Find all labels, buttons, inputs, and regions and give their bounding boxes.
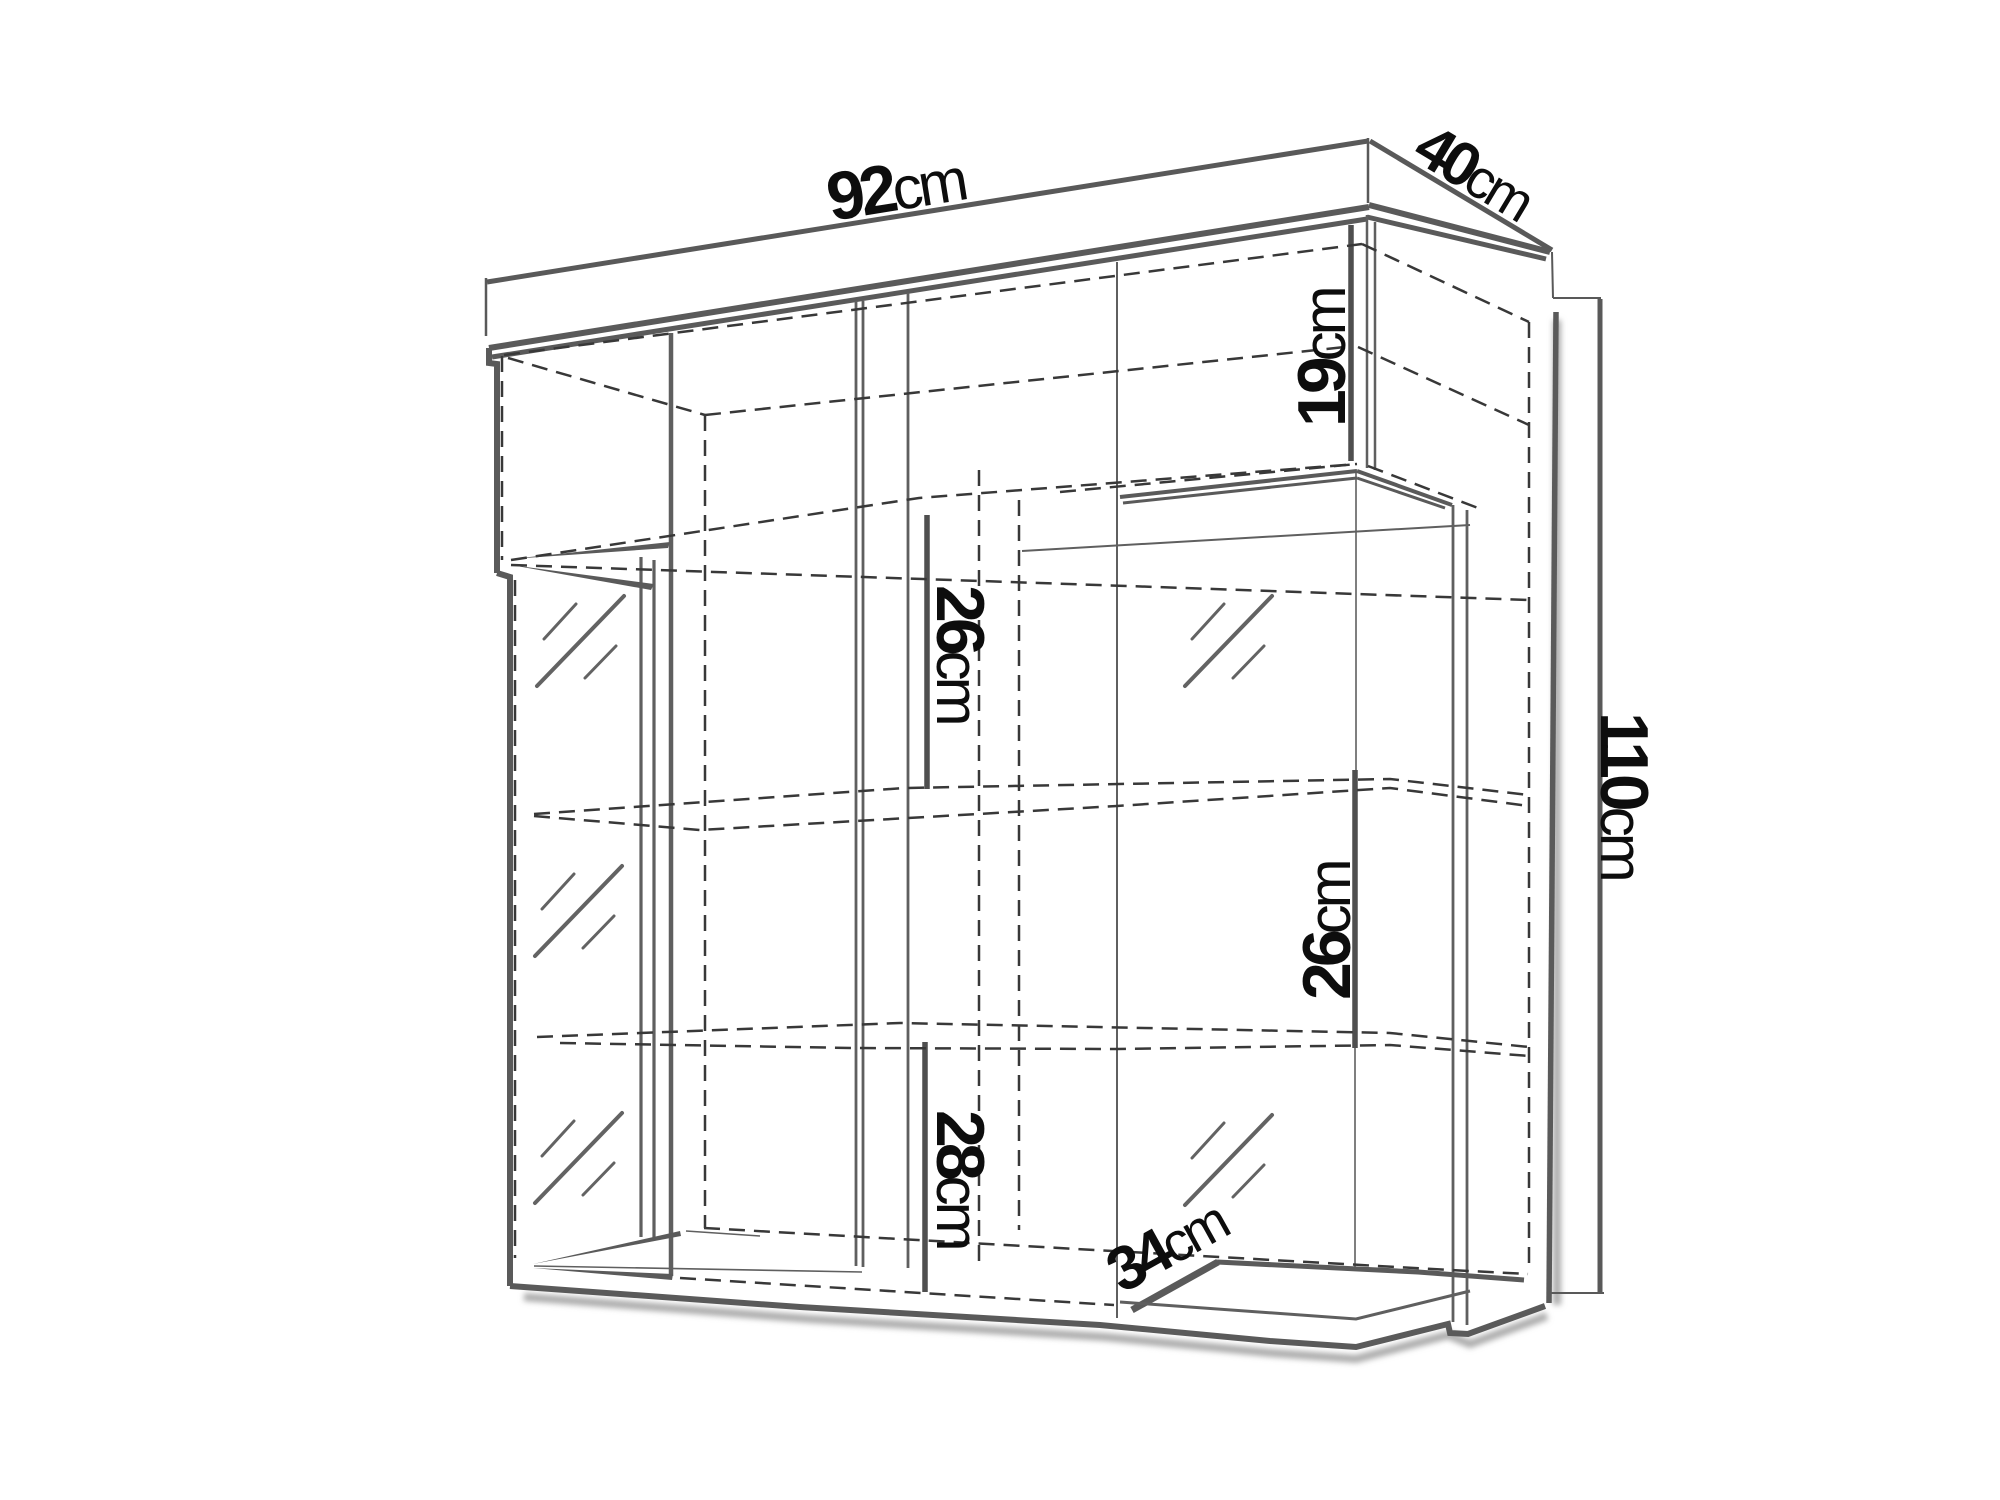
svg-text:28cm: 28cm — [922, 1110, 998, 1249]
svg-text:26cm: 26cm — [922, 585, 998, 724]
svg-text:19cm: 19cm — [1284, 288, 1360, 427]
svg-text:92cm: 92cm — [821, 139, 970, 236]
svg-text:26cm: 26cm — [1289, 861, 1365, 1000]
svg-text:40cm: 40cm — [1403, 111, 1546, 235]
svg-text:110cm: 110cm — [1586, 712, 1662, 880]
